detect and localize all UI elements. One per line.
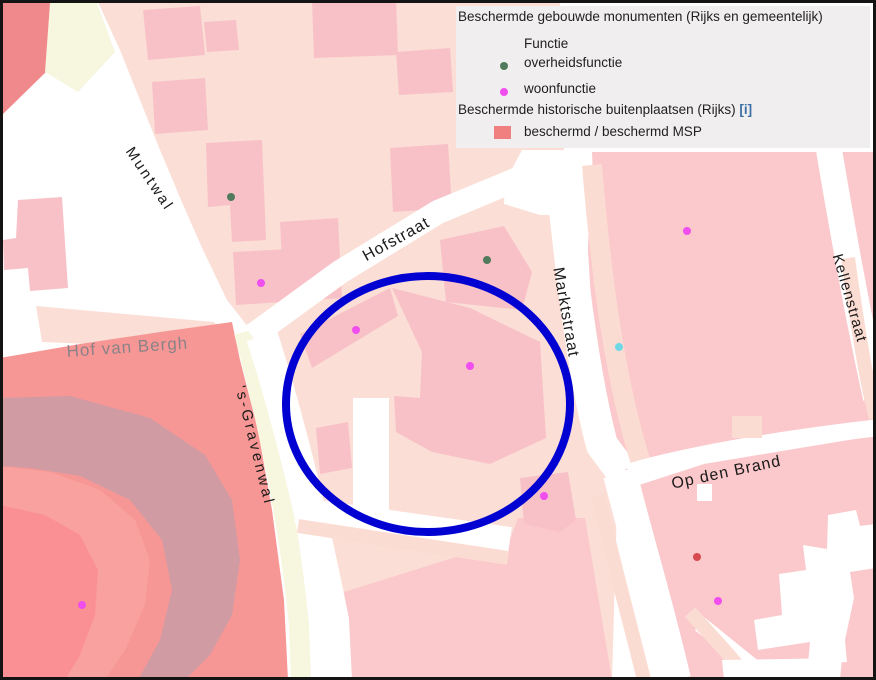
legend-title-monuments: Beschermde gebouwde monumenten (Rijks en… [458,9,823,24]
legend-item-beschermd: beschermd / beschermd MSP [524,124,702,139]
monument-dot-overheidsfunctie[interactable] [227,193,235,201]
monument-dot-woonfunctie[interactable] [352,326,360,334]
monument-dot-other-cyan[interactable] [615,343,623,351]
legend-swatch [494,126,511,139]
monument-dot-woonfunctie[interactable] [466,362,474,370]
legend-dot-overheidsfunctie [500,62,508,70]
legend-panel: Beschermde gebouwde monumenten (Rijks en… [456,6,870,148]
monument-dot-other-red[interactable] [693,553,701,561]
monument-dot-overheidsfunctie[interactable] [483,256,491,264]
legend-item-overheidsfunctie: overheidsfunctie [524,55,622,70]
monument-dot-woonfunctie[interactable] [683,227,691,235]
legend-title-buitenplaatsen-text: Beschermde historische buitenplaatsen (R… [458,102,736,117]
monument-dot-woonfunctie[interactable] [257,279,265,287]
legend-group-functie: Functie [524,36,568,51]
legend-info-link[interactable]: [i] [739,102,752,117]
legend-item-woonfunctie: woonfunctie [524,81,596,96]
legend-dot-woonfunctie [500,88,508,96]
monument-dot-woonfunctie[interactable] [540,492,548,500]
monument-dot-woonfunctie[interactable] [78,601,86,609]
monument-dot-woonfunctie[interactable] [714,597,722,605]
map-viewport[interactable]: Muntwal Hofstraat Hof van Bergh 's-Grave… [0,0,876,680]
legend-title-buitenplaatsen: Beschermde historische buitenplaatsen (R… [458,102,752,117]
